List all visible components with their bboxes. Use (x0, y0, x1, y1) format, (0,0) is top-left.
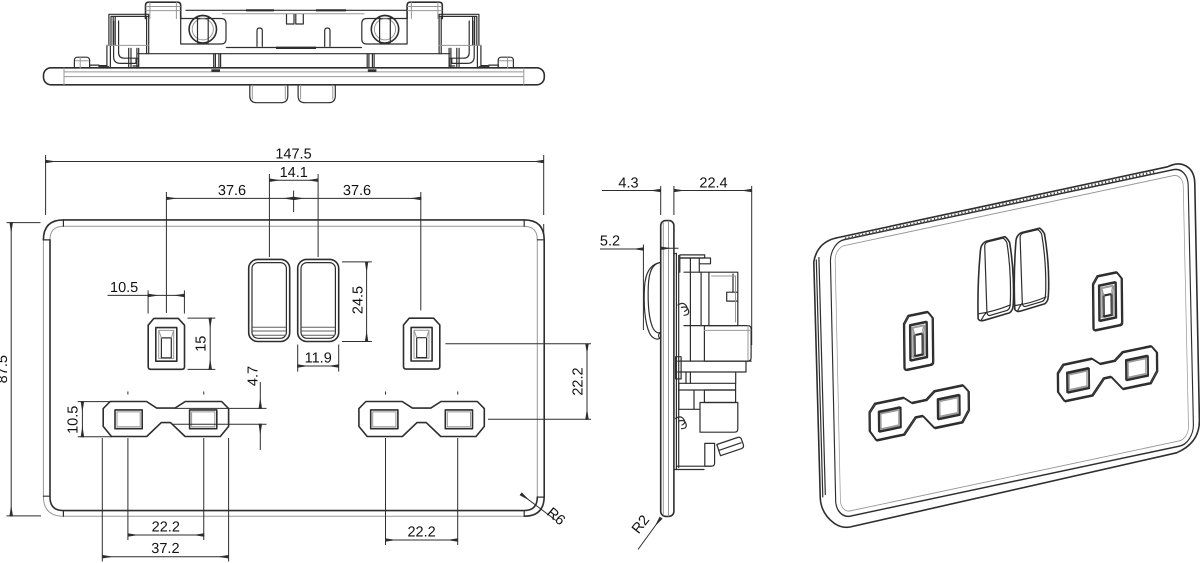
svg-text:37.2: 37.2 (151, 541, 179, 557)
svg-text:14.1: 14.1 (280, 165, 308, 181)
svg-text:10.5: 10.5 (66, 406, 82, 434)
svg-text:5.2: 5.2 (600, 234, 620, 250)
svg-text:4.7: 4.7 (246, 366, 262, 386)
svg-text:147.5: 147.5 (275, 146, 311, 162)
svg-text:37.6: 37.6 (343, 183, 371, 199)
svg-text:10.5: 10.5 (110, 280, 138, 296)
svg-text:11.9: 11.9 (305, 350, 332, 366)
svg-text:24.5: 24.5 (351, 286, 367, 314)
svg-text:22.2: 22.2 (407, 524, 435, 540)
svg-text:22.2: 22.2 (570, 367, 586, 395)
svg-text:15: 15 (194, 336, 210, 352)
svg-text:37.6: 37.6 (218, 183, 246, 199)
svg-text:4.3: 4.3 (618, 175, 638, 191)
svg-text:87.5: 87.5 (0, 355, 11, 383)
svg-text:22.4: 22.4 (699, 175, 727, 191)
svg-text:22.2: 22.2 (152, 520, 180, 536)
